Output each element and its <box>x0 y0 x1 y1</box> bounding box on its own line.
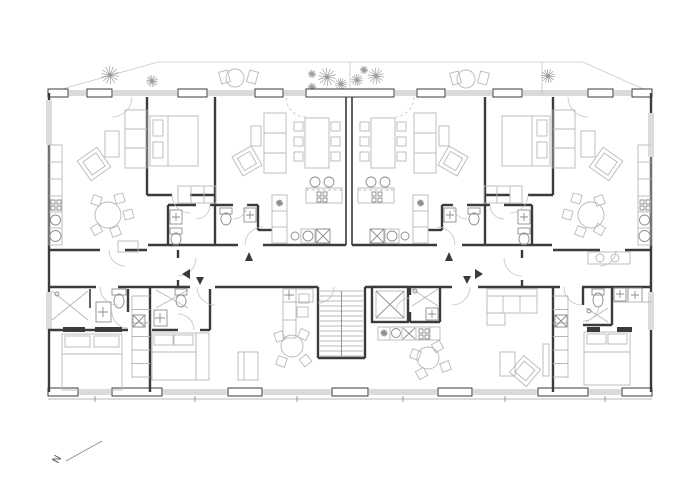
window <box>283 91 306 95</box>
door-arc <box>112 312 128 328</box>
closet-cells <box>132 296 150 377</box>
sofa <box>414 113 436 173</box>
chair <box>397 137 406 146</box>
window <box>207 91 255 95</box>
chair <box>360 152 369 161</box>
wall-pier <box>178 89 207 97</box>
fridge-icon <box>276 200 283 207</box>
sofa-chaise <box>487 313 505 325</box>
washing-machine <box>50 231 61 242</box>
window <box>649 292 653 330</box>
window <box>68 91 87 95</box>
closet <box>196 333 209 380</box>
console-table <box>588 252 630 264</box>
washer-drum <box>303 231 313 241</box>
pillow <box>537 142 547 158</box>
armchair-seat <box>515 361 535 381</box>
plant-icon <box>101 66 119 84</box>
chair <box>360 122 369 131</box>
window <box>368 390 438 394</box>
wall-pier <box>493 89 522 97</box>
chair <box>274 331 286 343</box>
stove-burners <box>372 192 382 202</box>
window <box>522 91 588 95</box>
armchair <box>510 356 541 387</box>
chair <box>294 152 303 161</box>
plant-icon <box>541 69 555 83</box>
wardrobe-rail <box>63 327 85 332</box>
dishwasher <box>370 229 384 243</box>
armchair <box>438 146 468 176</box>
bar-stool <box>380 177 390 187</box>
plant-icon <box>360 66 368 74</box>
floor-plan: N <box>0 0 700 495</box>
wall-pier <box>112 388 162 396</box>
door-arc <box>568 97 588 117</box>
pillow <box>587 334 606 344</box>
door-arc <box>196 205 210 219</box>
washing-machine <box>639 231 650 242</box>
pillow <box>153 120 163 136</box>
sofa <box>238 352 258 380</box>
sofa <box>553 110 575 168</box>
chair <box>331 122 340 131</box>
wall-pier <box>48 388 78 396</box>
kitchen-sink <box>51 215 61 225</box>
entrance-arrow <box>182 269 190 279</box>
plant-icon <box>146 75 158 87</box>
plant-icon <box>368 68 384 84</box>
window <box>112 91 178 95</box>
kitchen-counter <box>49 145 62 245</box>
closet-x <box>133 315 145 327</box>
kitchen-cabinet <box>297 307 308 317</box>
dining-table <box>578 202 604 228</box>
wall-pier <box>438 388 472 396</box>
window <box>162 390 228 394</box>
wc-bowl <box>176 295 186 307</box>
sink-tap <box>520 213 528 221</box>
wall-pier <box>538 388 588 396</box>
wc-bowl <box>221 213 231 225</box>
side-table <box>251 126 261 146</box>
window <box>588 390 622 394</box>
wall-pier <box>632 89 652 97</box>
stove-burners <box>317 192 327 202</box>
coffee-table <box>105 131 119 157</box>
sink-tap <box>428 310 436 318</box>
entrance-arrow <box>445 252 453 261</box>
coffee-table <box>581 131 595 157</box>
bed <box>150 116 198 166</box>
armchair-seat <box>595 153 617 175</box>
sink-tap <box>98 307 108 317</box>
sofa <box>487 289 537 313</box>
sofa <box>264 113 286 173</box>
armchair-seat <box>83 153 105 175</box>
washer-drum <box>387 231 397 241</box>
stove-burners <box>640 200 650 210</box>
side-table <box>439 126 449 146</box>
tv-board <box>543 344 549 376</box>
wall-pier <box>332 388 368 396</box>
bed <box>502 116 550 166</box>
north-arrow-line <box>66 441 102 461</box>
wc-bowl <box>114 294 124 308</box>
window <box>445 91 493 95</box>
door-arc <box>452 287 470 305</box>
laundry-basket <box>291 232 299 240</box>
window <box>394 91 417 95</box>
armchair <box>589 147 622 180</box>
wall-pier <box>255 89 283 97</box>
window <box>613 91 632 95</box>
door-arc <box>286 97 306 117</box>
fridge-icon <box>417 200 424 207</box>
entrance-arrow <box>245 252 253 261</box>
door-arc <box>453 205 467 219</box>
kitchen-counter <box>638 145 651 245</box>
laundry-basket <box>401 232 409 240</box>
wall-pier <box>48 89 68 97</box>
kitchen-counter <box>283 289 313 302</box>
entrance-arrow <box>475 269 483 279</box>
chair <box>360 137 369 146</box>
north-label: N <box>51 454 64 466</box>
plant-icon <box>308 70 316 78</box>
kitchen-sink <box>640 215 650 225</box>
chair <box>331 152 340 161</box>
closet-x <box>555 315 567 327</box>
door-arc <box>490 205 504 219</box>
bed <box>584 332 630 385</box>
sink-tap <box>616 290 624 298</box>
wall-pier <box>306 89 394 97</box>
wall-pier <box>417 89 445 97</box>
door-arc <box>564 287 582 305</box>
window <box>47 292 51 330</box>
window <box>262 390 332 394</box>
chair <box>594 195 606 207</box>
chair <box>294 122 303 131</box>
wc-bowl <box>469 213 479 225</box>
chair <box>562 209 573 220</box>
wall-pier <box>588 89 613 97</box>
chair <box>298 329 310 341</box>
sink-tap <box>172 213 180 221</box>
wardrobe-rail <box>617 327 632 332</box>
door-arc <box>112 97 132 117</box>
armchair <box>77 147 110 180</box>
sink-tap <box>284 290 294 300</box>
terrace-table <box>226 69 244 87</box>
chair <box>299 354 312 367</box>
entrance-arrow <box>196 277 204 285</box>
wc-tank <box>592 289 604 295</box>
console-bowl <box>596 254 604 262</box>
closet-cells <box>553 296 568 377</box>
window <box>47 100 51 145</box>
kitchen-sink <box>392 329 401 338</box>
door-arc <box>178 314 194 330</box>
door-arc <box>504 258 522 276</box>
fridge-icon <box>381 330 388 337</box>
sink-tap <box>155 313 165 323</box>
door-arc <box>394 97 414 117</box>
sink-tap <box>631 291 639 299</box>
armchair <box>232 146 262 176</box>
pillow <box>537 120 547 136</box>
chair <box>431 340 443 352</box>
coffee-table <box>500 352 515 376</box>
chair <box>571 193 582 204</box>
entrance-arrow <box>463 276 471 284</box>
pillow <box>94 336 119 347</box>
armchair-seat <box>443 151 462 170</box>
dining-table <box>305 118 329 168</box>
bar-stool <box>324 177 334 187</box>
door-arc <box>197 287 215 305</box>
chair <box>575 226 587 238</box>
wardrobe-rail <box>95 327 122 332</box>
wc-bowl <box>171 233 181 245</box>
wc-bowl <box>519 233 529 245</box>
chair <box>114 193 125 204</box>
terrace-table <box>457 70 475 88</box>
stove-burners <box>51 200 61 210</box>
armchair-seat <box>237 151 256 170</box>
chair <box>123 209 134 220</box>
stove-burners <box>419 329 429 339</box>
chair <box>294 137 303 146</box>
pillow <box>154 335 173 345</box>
chair <box>276 356 288 368</box>
chair <box>440 361 452 373</box>
sink-tap <box>446 211 454 219</box>
terrace-chair <box>247 70 259 84</box>
window <box>78 390 112 394</box>
sink-tap <box>246 211 254 219</box>
wall-pier <box>228 388 262 396</box>
bar-stool <box>366 177 376 187</box>
wall-pier <box>87 89 112 97</box>
terrace-chair <box>478 71 490 85</box>
pillow <box>608 334 627 344</box>
wardrobe-rail <box>587 327 600 332</box>
bar-stool <box>310 177 320 187</box>
dining-table <box>371 118 395 168</box>
pillow <box>153 142 163 158</box>
sofa <box>125 110 147 168</box>
bed <box>62 334 122 390</box>
plant-icon <box>351 74 363 86</box>
chair <box>397 152 406 161</box>
dishwasher <box>316 229 330 243</box>
door-arc <box>233 205 247 219</box>
floor-plan-sheet: N <box>0 0 700 495</box>
door-arc <box>583 305 599 321</box>
pillow <box>174 335 193 345</box>
chair <box>331 137 340 146</box>
wall-pier <box>622 388 652 396</box>
window <box>472 390 538 394</box>
dining-table <box>417 347 439 369</box>
chair <box>90 223 102 235</box>
plant-icon <box>335 78 347 90</box>
plant-icon <box>318 68 336 86</box>
pillow <box>65 336 90 347</box>
chair <box>397 122 406 131</box>
